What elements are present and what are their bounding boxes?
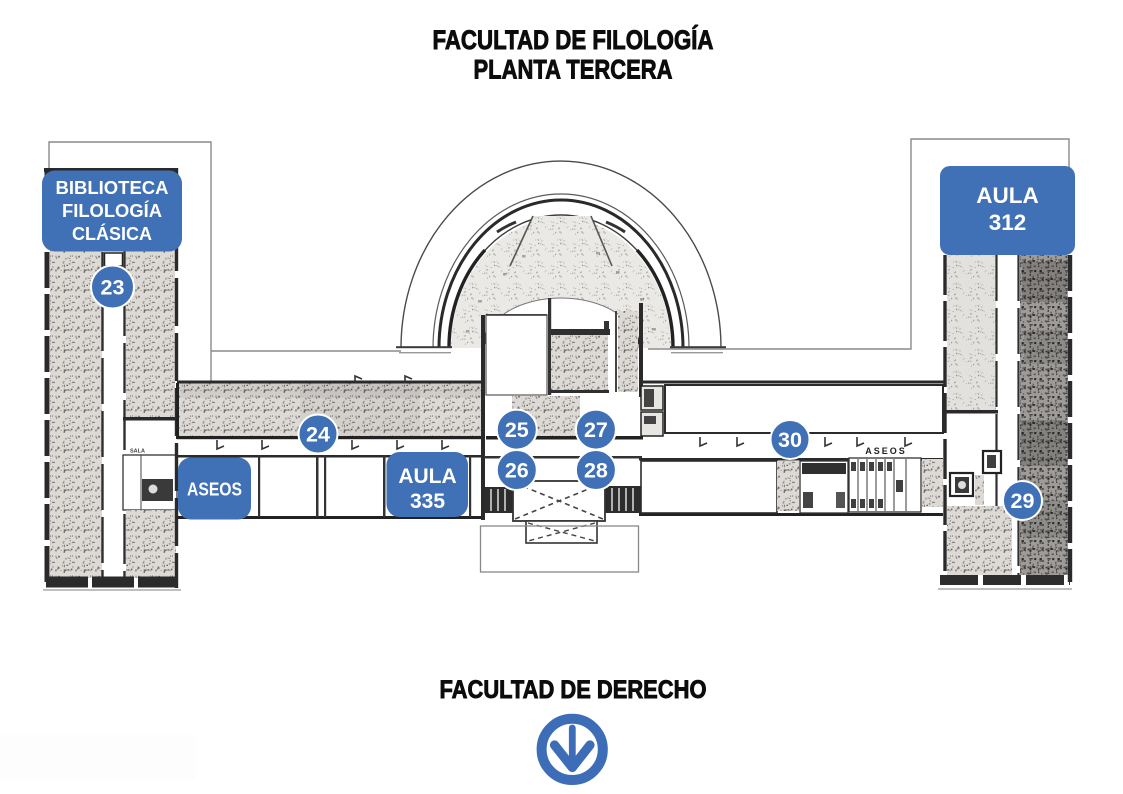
svg-text:335: 335 — [410, 490, 445, 513]
svg-text:AULA: AULA — [398, 465, 456, 488]
svg-text:BIBLIOTECA: BIBLIOTECA — [56, 177, 169, 198]
svg-text:29: 29 — [1011, 489, 1035, 513]
svg-text:FACULTAD DE FILOLOGÍA: FACULTAD DE FILOLOGÍA — [433, 24, 714, 55]
svg-text:26: 26 — [505, 459, 529, 483]
svg-text:25: 25 — [505, 418, 529, 442]
svg-text:FILOLOGÍA: FILOLOGÍA — [62, 200, 162, 221]
svg-text:24: 24 — [306, 423, 330, 447]
svg-text:ASEOS: ASEOS — [187, 479, 242, 500]
svg-text:PLANTA TERCERA: PLANTA TERCERA — [474, 55, 673, 85]
svg-text:23: 23 — [101, 276, 125, 300]
svg-text:CLÁSICA: CLÁSICA — [72, 223, 152, 244]
svg-text:30: 30 — [778, 428, 802, 452]
svg-text:312: 312 — [989, 210, 1027, 235]
svg-text:FACULTAD DE DERECHO: FACULTAD DE DERECHO — [440, 676, 707, 704]
svg-text:SALA: SALA — [130, 449, 145, 455]
svg-text:ASEOS: ASEOS — [865, 446, 907, 456]
svg-text:28: 28 — [584, 459, 608, 483]
svg-text:AULA: AULA — [976, 183, 1039, 208]
svg-text:27: 27 — [584, 418, 608, 442]
